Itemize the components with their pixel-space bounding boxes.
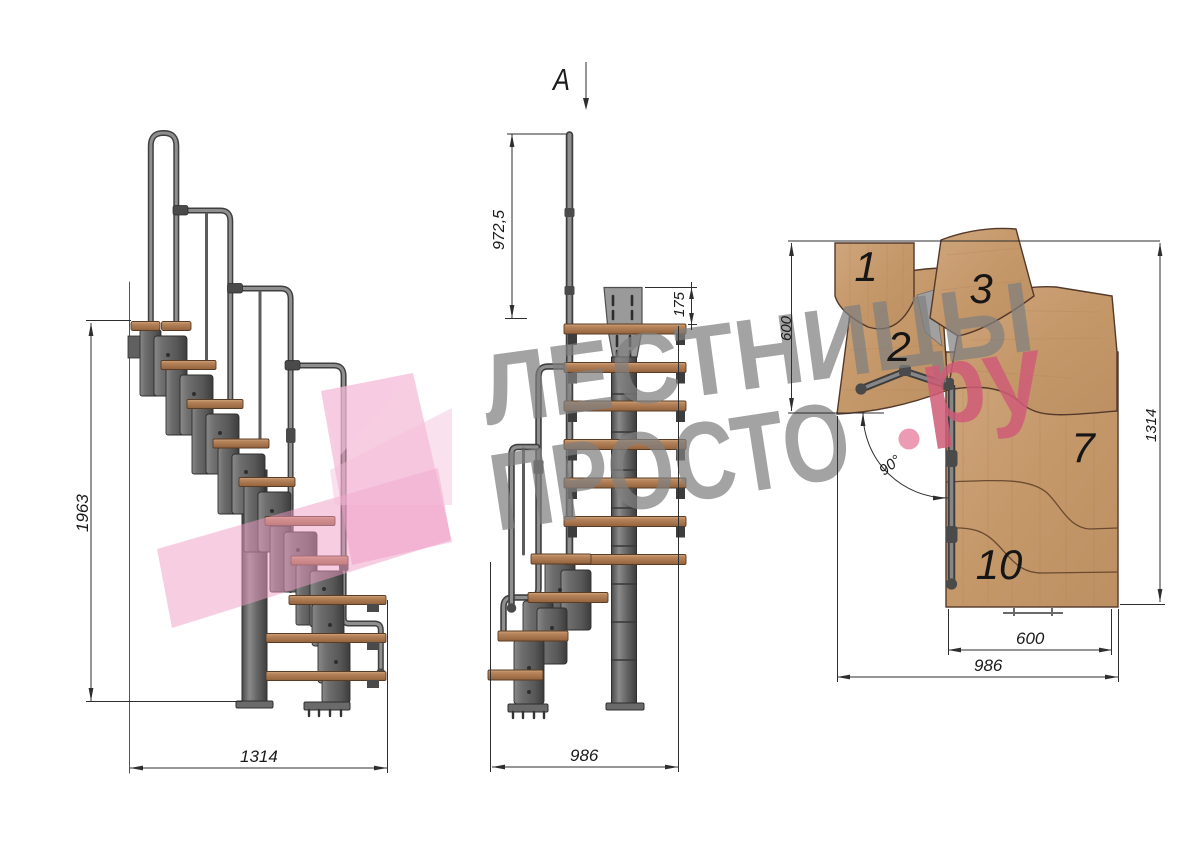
svg-text:1: 1 — [854, 243, 877, 290]
svg-text:ру: ру — [912, 309, 1052, 451]
svg-text:986: 986 — [974, 656, 1003, 675]
svg-text:986: 986 — [570, 746, 599, 765]
svg-text:1314: 1314 — [1143, 409, 1160, 442]
svg-text:7: 7 — [1071, 424, 1096, 471]
svg-text:600: 600 — [1016, 629, 1045, 648]
svg-text:2: 2 — [886, 323, 910, 370]
svg-text:3: 3 — [969, 265, 992, 312]
svg-text:10: 10 — [976, 541, 1023, 588]
svg-text:90°: 90° — [876, 452, 904, 479]
svg-text:1963: 1963 — [73, 494, 92, 532]
svg-text:175: 175 — [671, 291, 688, 317]
svg-text:А: А — [551, 63, 570, 98]
svg-text:600: 600 — [778, 315, 795, 341]
svg-text:972,5: 972,5 — [491, 210, 508, 250]
svg-text:1314: 1314 — [240, 747, 278, 766]
